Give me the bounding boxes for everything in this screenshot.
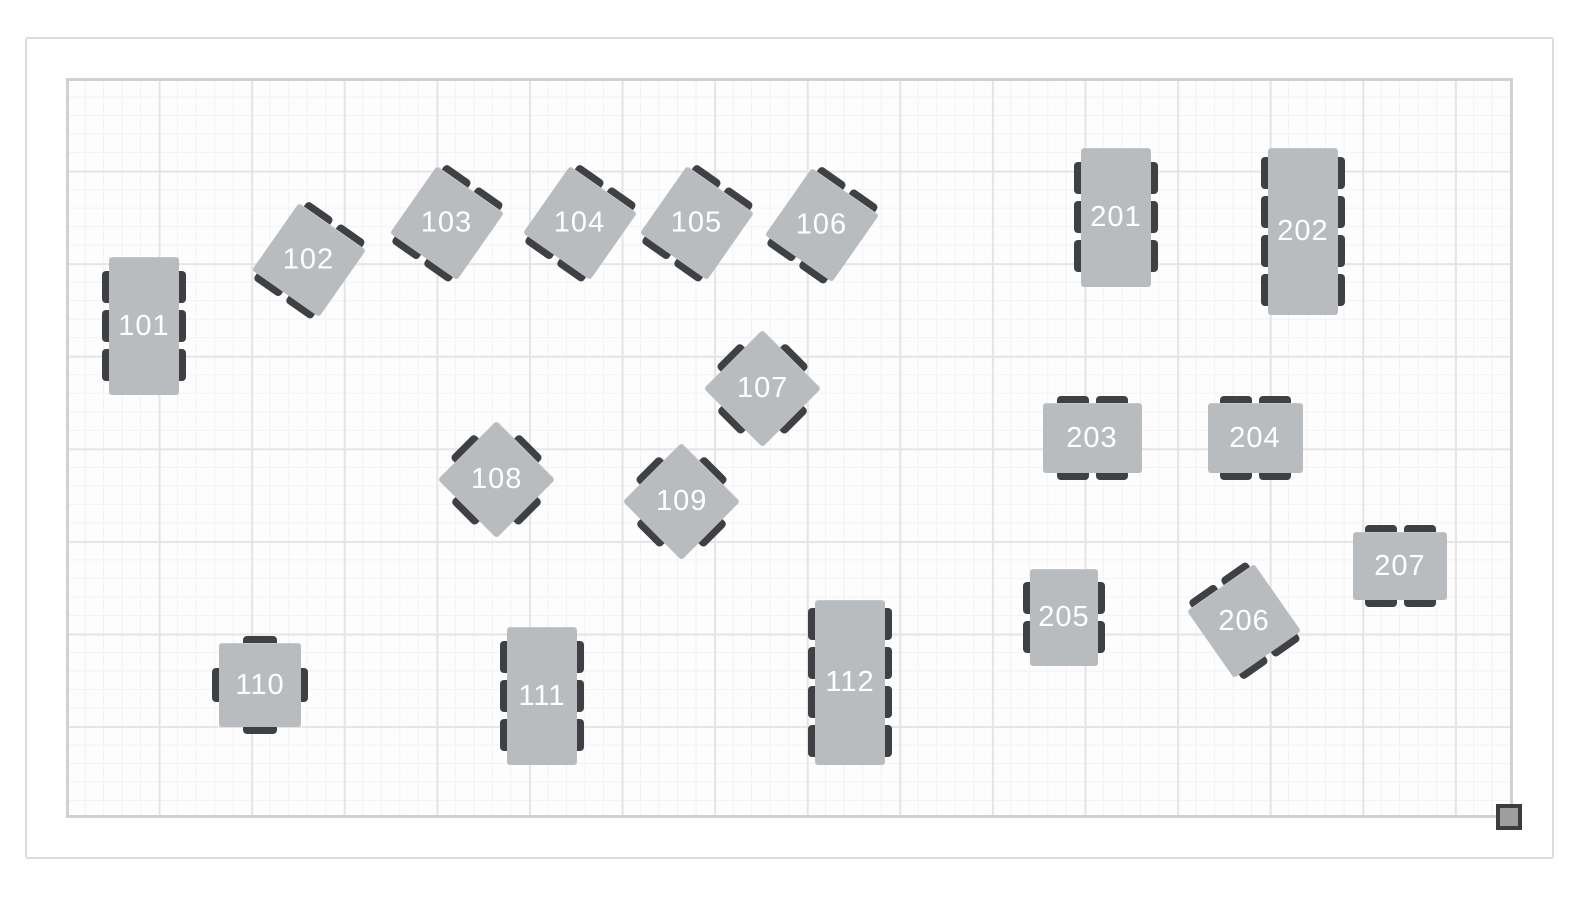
table-top: 207 xyxy=(1353,532,1447,600)
table-top: 109 xyxy=(622,442,739,559)
room-resize-handle[interactable] xyxy=(1496,804,1522,830)
table-top: 110 xyxy=(219,643,301,727)
table-top: 206 xyxy=(1187,564,1301,678)
table-label: 103 xyxy=(421,208,472,237)
table-110[interactable]: 110 xyxy=(219,643,301,727)
table-top: 108 xyxy=(437,420,554,537)
table-205[interactable]: 205 xyxy=(1030,569,1098,666)
table-top: 101 xyxy=(109,257,179,395)
table-103[interactable]: 103 xyxy=(390,166,504,280)
table-203[interactable]: 203 xyxy=(1043,403,1142,473)
table-top: 201 xyxy=(1081,148,1151,287)
table-102[interactable]: 102 xyxy=(252,203,366,317)
table-106[interactable]: 106 xyxy=(765,168,879,282)
table-204[interactable]: 204 xyxy=(1208,403,1303,473)
table-label: 104 xyxy=(554,208,605,237)
table-top: 107 xyxy=(703,329,820,446)
table-109[interactable]: 109 xyxy=(622,442,739,559)
table-label: 110 xyxy=(235,671,284,700)
table-top: 203 xyxy=(1043,403,1142,473)
table-label: 204 xyxy=(1229,424,1280,453)
table-label: 206 xyxy=(1218,607,1269,636)
table-label: 102 xyxy=(283,245,334,274)
table-label: 107 xyxy=(736,373,787,402)
table-top: 205 xyxy=(1030,569,1098,666)
table-top: 106 xyxy=(765,168,879,282)
table-107[interactable]: 107 xyxy=(703,329,820,446)
table-201[interactable]: 201 xyxy=(1081,148,1151,287)
table-105[interactable]: 105 xyxy=(640,166,754,280)
table-top: 112 xyxy=(815,600,885,765)
table-top: 105 xyxy=(640,166,754,280)
table-label: 108 xyxy=(470,464,521,493)
table-111[interactable]: 111 xyxy=(507,627,577,765)
table-label: 112 xyxy=(825,668,874,697)
table-202[interactable]: 202 xyxy=(1268,148,1338,315)
table-label: 205 xyxy=(1038,603,1089,632)
table-label: 202 xyxy=(1277,217,1328,246)
floor-plan-grid[interactable]: 1011021031041051061071081091101111122012… xyxy=(66,78,1513,818)
table-top: 111 xyxy=(507,627,577,765)
table-label: 111 xyxy=(518,682,565,711)
table-label: 207 xyxy=(1374,552,1425,581)
table-label: 101 xyxy=(118,312,169,341)
table-label: 203 xyxy=(1066,424,1117,453)
floor-plan-frame: 1011021031041051061071081091101111122012… xyxy=(25,37,1554,859)
table-108[interactable]: 108 xyxy=(437,420,554,537)
table-207[interactable]: 207 xyxy=(1353,532,1447,600)
table-label: 105 xyxy=(671,208,722,237)
table-112[interactable]: 112 xyxy=(815,600,885,765)
table-label: 106 xyxy=(796,210,847,239)
table-label: 201 xyxy=(1090,203,1141,232)
table-top: 104 xyxy=(523,166,637,280)
table-top: 103 xyxy=(390,166,504,280)
table-label: 109 xyxy=(655,486,706,515)
table-top: 202 xyxy=(1268,148,1338,315)
table-top: 204 xyxy=(1208,403,1303,473)
table-206[interactable]: 206 xyxy=(1187,564,1301,678)
table-104[interactable]: 104 xyxy=(523,166,637,280)
table-101[interactable]: 101 xyxy=(109,257,179,395)
table-top: 102 xyxy=(252,203,366,317)
